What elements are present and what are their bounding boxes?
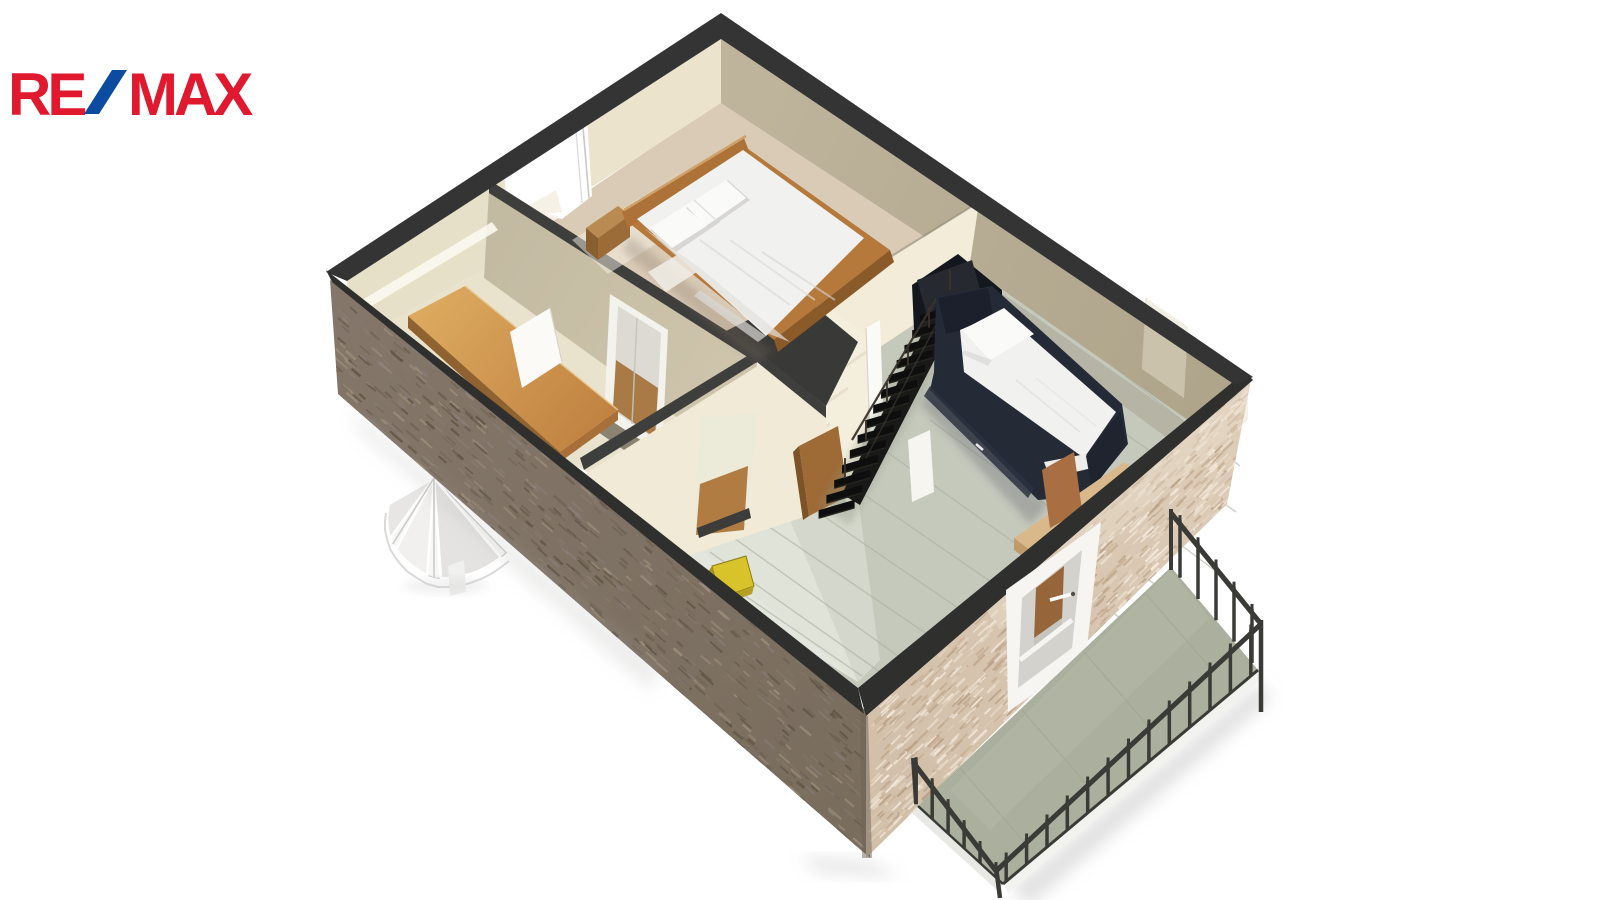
svg-text:MAX: MAX — [128, 61, 253, 128]
svg-text:RE: RE — [8, 61, 85, 128]
